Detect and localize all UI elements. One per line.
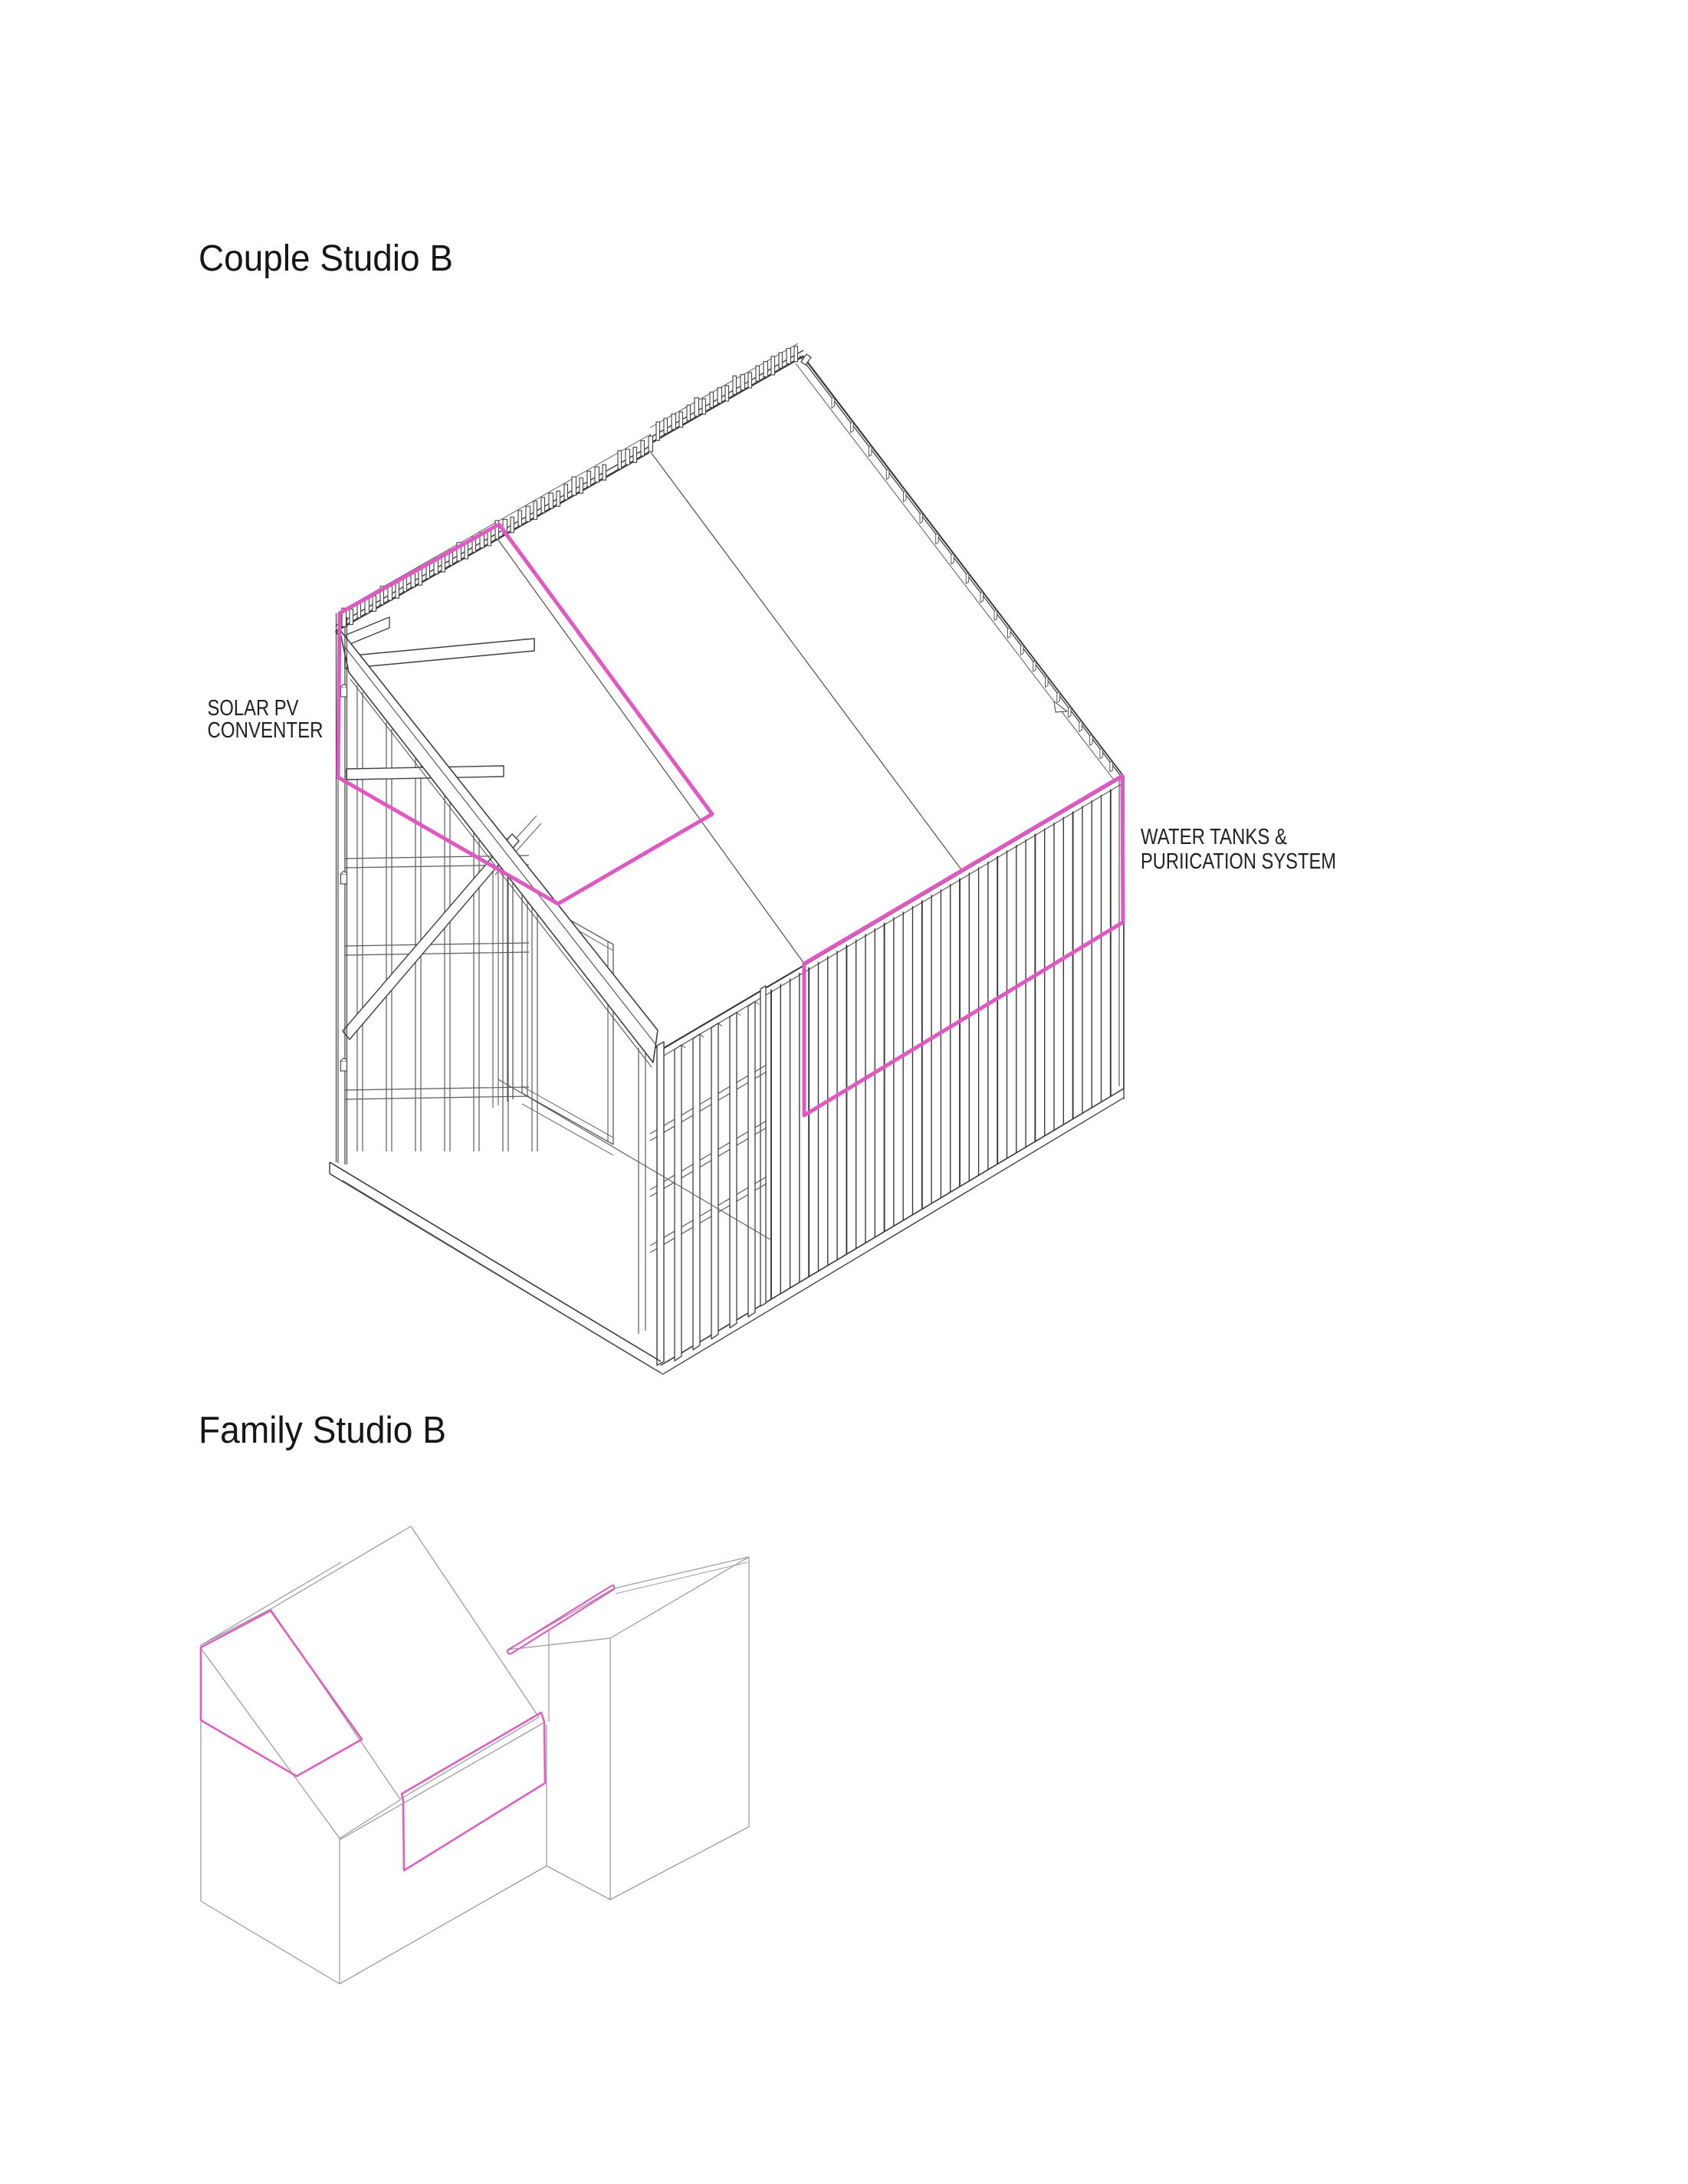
svg-text:PURIICATION SYSTEM: PURIICATION SYSTEM [1141, 849, 1336, 874]
svg-text:Family Studio B: Family Studio B [199, 1410, 446, 1451]
svg-text:SOLAR PV: SOLAR PV [208, 696, 299, 721]
svg-text:Couple Studio B: Couple Studio B [199, 238, 453, 279]
svg-text:WATER TANKS &: WATER TANKS & [1141, 825, 1287, 849]
svg-text:CONVENTER: CONVENTER [208, 718, 323, 743]
